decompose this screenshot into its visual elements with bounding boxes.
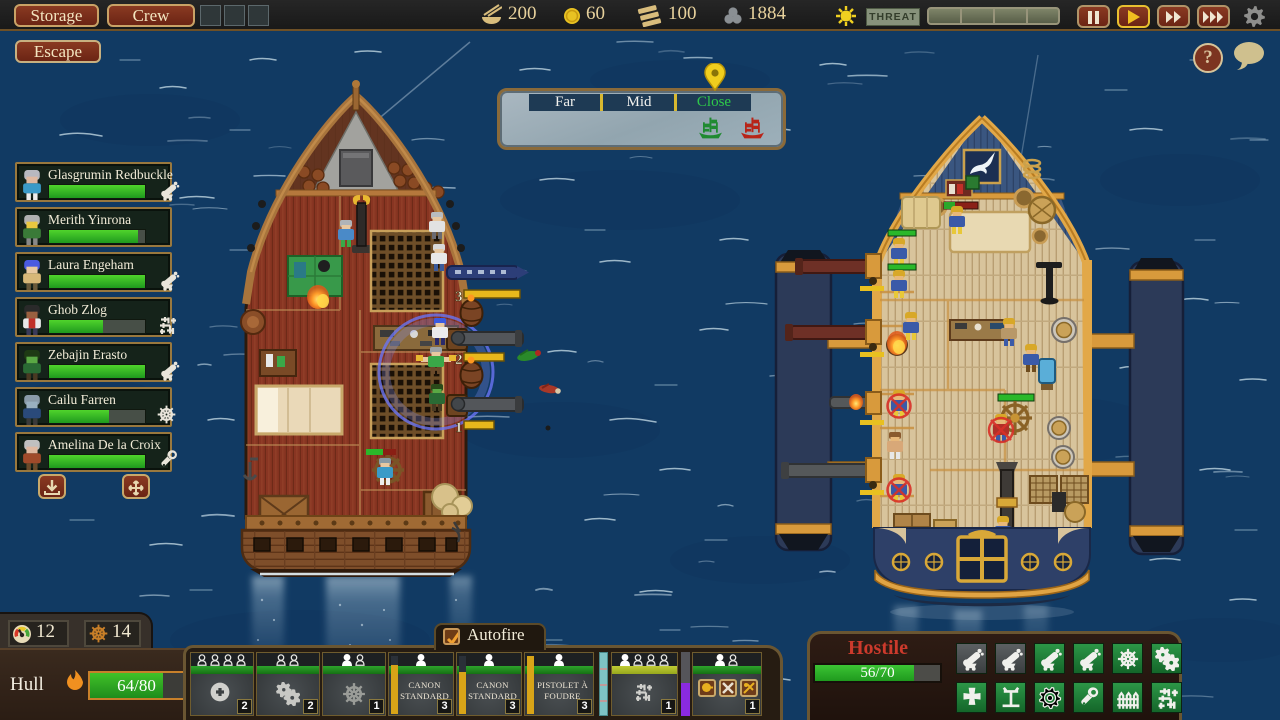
svg-text:3: 3 — [455, 289, 463, 305]
svg-text:1: 1 — [455, 420, 463, 436]
svg-text:2: 2 — [455, 352, 463, 368]
